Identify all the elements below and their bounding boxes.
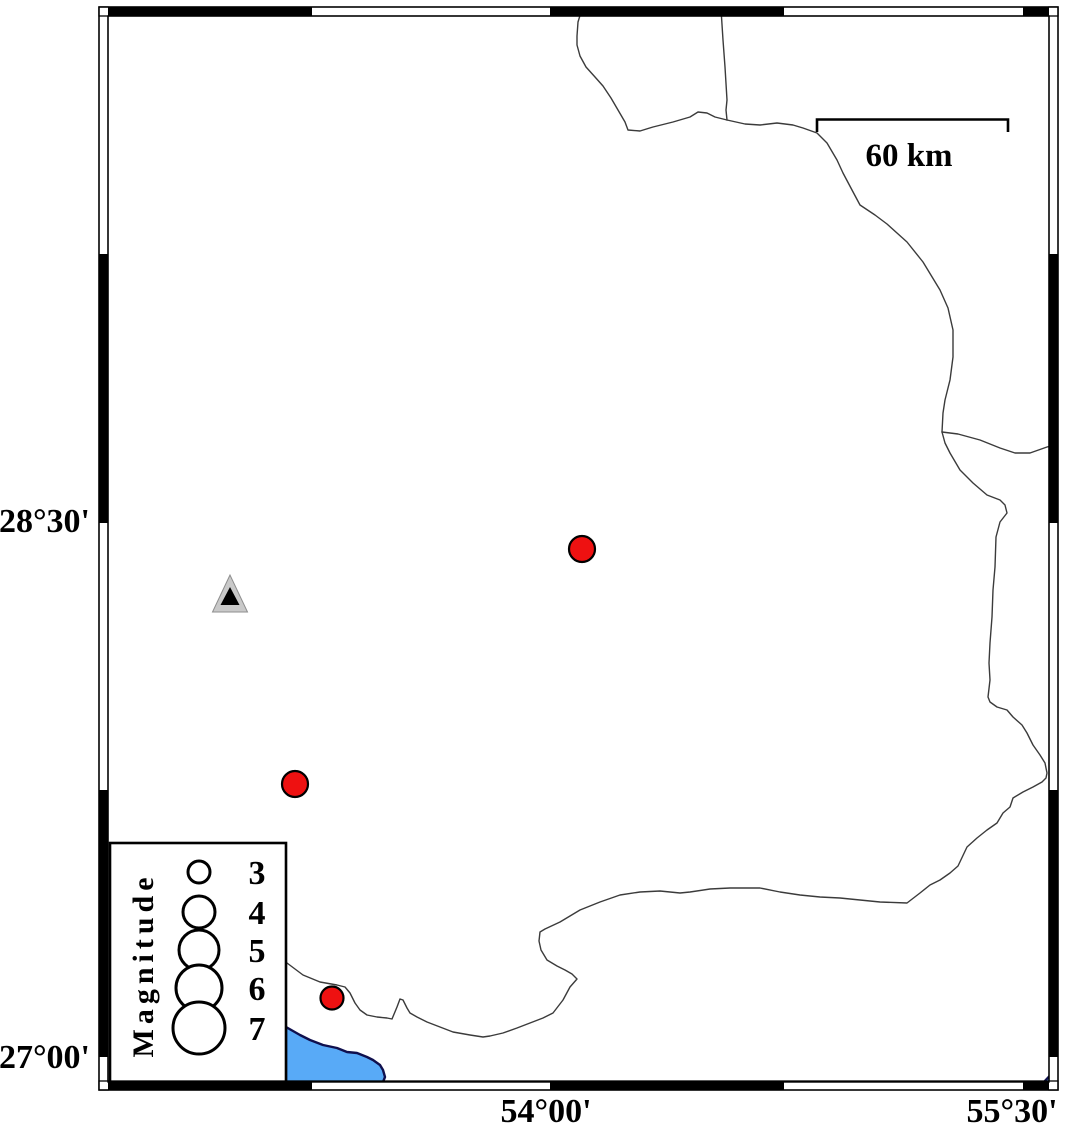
longitude-label: 55°30': [966, 1093, 1057, 1129]
earthquake-marker: [321, 987, 344, 1010]
legend-value: 7: [249, 1011, 266, 1048]
frame-seg: [108, 7, 312, 16]
boundary-line-north: [721, 9, 727, 120]
legend-circle-m3: [188, 861, 210, 883]
earthquake-marker: [282, 771, 308, 797]
frame-seg: [1049, 790, 1058, 1057]
legend-title: Magnitude: [127, 872, 160, 1057]
legend-circle-m7: [173, 1002, 225, 1054]
earthquake-marker: [569, 536, 595, 562]
longitude-label: 54°00': [500, 1093, 591, 1129]
scale-bar: 60 km: [817, 120, 1008, 175]
legend-value: 6: [249, 971, 266, 1008]
boundary-line-nw: [577, 9, 727, 131]
legend-circle-m4: [183, 896, 215, 928]
magnitude-legend: Magnitude 3 4 5 6 7: [110, 843, 286, 1082]
coastline-path: [287, 432, 1047, 1037]
frame-seg: [99, 254, 108, 523]
seismicity-map: 60 km Magnitude 3 4 5 6 7 28: [0, 0, 1066, 1129]
latitude-label: 27°00': [0, 1039, 90, 1076]
scale-bar-label: 60 km: [865, 138, 952, 174]
scale-bar-bracket: [817, 120, 1008, 133]
legend-value: 3: [249, 855, 266, 892]
frame-seg: [550, 7, 784, 16]
legend-value: 4: [249, 895, 266, 932]
latitude-label: 28°30': [0, 503, 90, 540]
legend-value: 5: [249, 933, 266, 970]
sea-area: [286, 1027, 385, 1082]
frame-seg: [1023, 7, 1049, 16]
boundary-line-east-branch: [942, 432, 1055, 453]
frame-seg: [1049, 254, 1058, 523]
frame-seg: [99, 790, 108, 1057]
